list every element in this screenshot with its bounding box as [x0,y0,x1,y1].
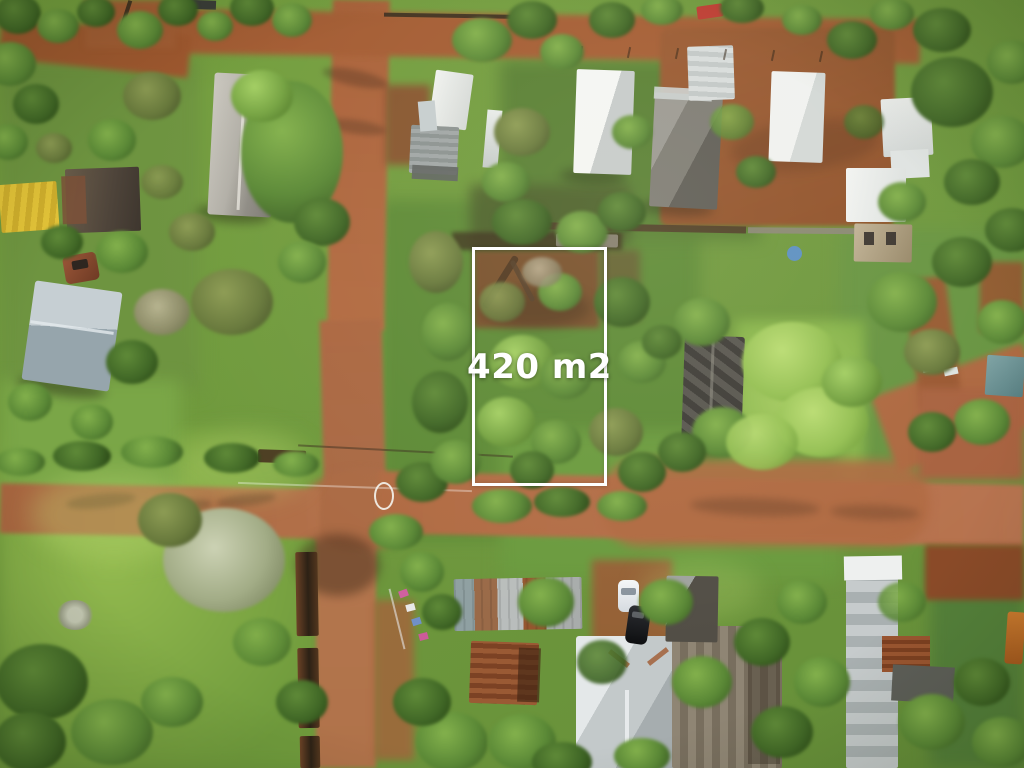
tree-canopy [37,9,79,43]
tree-canopy [507,1,557,39]
roof-dark-section [517,648,541,703]
tree-canopy [827,21,877,59]
aerial-photo: 420 m2 [0,0,1024,768]
tree-canopy [197,11,233,41]
wooden-fence-wall [300,736,321,768]
tree-canopy [8,383,52,421]
tree-canopy [472,489,532,523]
tree-canopy [977,300,1024,344]
tree-canopy [878,182,926,222]
tree-canopy [674,298,730,346]
tree-canopy [276,680,328,724]
tree-canopy [138,493,202,547]
house-white-roof [768,71,825,163]
house-gray-shingle-roof [649,92,723,209]
shed-teal-roof [985,355,1024,398]
tree-canopy [751,706,813,758]
tree-canopy [612,115,652,149]
tree-canopy [0,644,88,720]
tree-canopy [518,577,574,627]
tree-canopy [169,213,215,251]
tree-canopy [409,231,463,293]
tree-canopy [867,272,937,332]
tree-canopy [412,371,468,433]
tree-canopy [204,443,260,473]
tree-canopy [954,399,1010,445]
lot-boundary-overlay: 420 m2 [472,247,607,486]
roof-white-section [844,555,902,580]
tree-canopy [987,40,1024,84]
tree-canopy [777,580,827,624]
tree-canopy [36,133,72,163]
tree-canopy [369,514,423,550]
tree-canopy [972,717,1024,767]
tree-canopy [482,162,530,202]
tree-canopy [736,156,776,188]
tree-canopy [726,414,798,470]
water-tank-blue [787,246,802,261]
tree-canopy [822,357,882,407]
laundry-item [411,617,422,626]
tree-canopy [71,404,113,440]
tree-canopy [904,329,960,375]
tree-canopy [96,231,148,273]
tree-canopy [0,712,66,768]
tree-canopy [272,3,312,37]
tree-canopy [954,658,1010,706]
window-opening [864,232,874,245]
tree-canopy [932,237,992,287]
tree-canopy [589,2,635,38]
tree-canopy [672,656,732,708]
shed-rust-section [61,176,87,225]
shed-silver-roof [687,45,735,101]
orange-machine [1004,611,1024,664]
wooden-fence-wall [295,552,318,636]
tree-canopy [141,677,203,727]
shed-silver-panel [418,100,438,131]
tree-canopy [191,269,273,335]
tree-canopy [41,225,83,259]
tree-canopy [294,198,350,246]
tree-canopy [534,487,590,517]
tree-canopy [658,432,706,472]
tree-canopy [53,441,111,471]
tree-canopy [734,618,790,666]
shed-dark-edge [412,165,459,181]
tree-canopy [13,84,59,124]
tree-canopy [400,552,444,592]
window-opening [886,232,896,245]
tree-canopy [121,436,183,468]
car-windshield [621,588,636,595]
tree-canopy [273,451,319,477]
house-bluegray-roof [21,280,122,391]
tree-canopy [598,192,646,232]
tree-canopy [452,18,512,62]
tree-canopy [540,34,584,70]
debris-pile [56,600,94,630]
tree-canopy [117,11,163,49]
tree-canopy [642,325,682,359]
tree-canopy [71,699,153,765]
laundry-item [405,603,416,612]
tree-canopy [913,8,971,52]
tree-canopy [614,738,670,768]
unfinished-block-house [854,223,913,262]
tree-canopy [844,105,884,139]
laundry-item [398,589,409,599]
tree-canopy [123,72,181,120]
tree-canopy [908,412,956,452]
tree-canopy [393,678,451,726]
tree-canopy [88,119,136,161]
tree-canopy [106,340,158,384]
tree-canopy [878,582,926,622]
culvert-pipe [374,482,394,510]
tree-canopy [794,657,850,707]
tree-canopy [782,5,822,35]
tree-canopy [141,165,183,199]
tree-canopy [233,618,291,666]
tree-canopy [899,694,965,750]
tree-canopy [492,199,552,245]
tree-canopy [944,159,1000,205]
laundry-item [418,632,429,641]
shed-yellow-roof [0,181,60,233]
tree-canopy [911,57,993,127]
tree-canopy [639,579,693,625]
tree-canopy [278,241,326,283]
tree-canopy [134,289,190,335]
tree-canopy [577,640,627,684]
tree-canopy [494,108,550,156]
tree-canopy [710,104,754,140]
lot-area-label: 420 m2 [467,347,612,387]
tree-canopy [422,594,462,630]
dirt-patch-bottom-right [925,545,1024,600]
tree-canopy [231,70,293,122]
tree-canopy [597,491,647,521]
